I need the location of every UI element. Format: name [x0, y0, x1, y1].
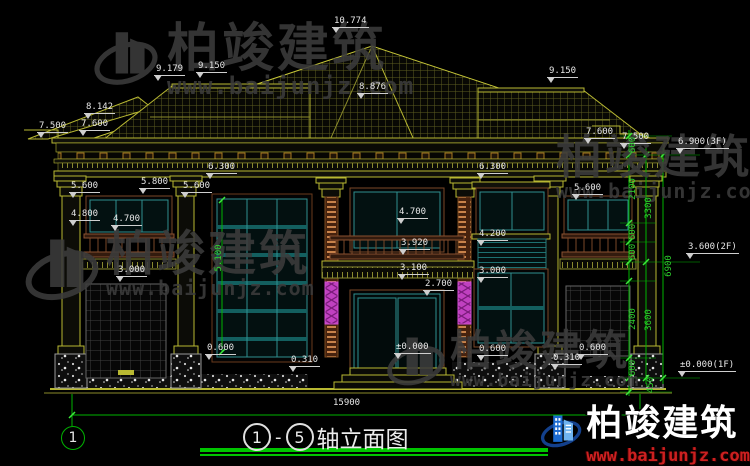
chain-dim: 600	[628, 235, 638, 269]
title-axis-start: 1	[243, 423, 271, 451]
dim-label: 0.600	[577, 343, 608, 355]
dim-label: 5.600	[69, 181, 100, 193]
dim-label: 4.800	[69, 209, 100, 221]
left-grid-window	[86, 284, 166, 378]
dim-label: 0.600	[205, 343, 236, 355]
dim-label: 5.800	[139, 177, 170, 189]
dim-label: ±0.000	[394, 342, 431, 354]
chain-dim: 2400	[628, 302, 638, 336]
title-dash: -	[275, 427, 282, 448]
dim-label: 4.700	[397, 207, 428, 219]
chain-dim: 3300	[644, 191, 654, 225]
dim-label: 6.900(3F)	[676, 137, 729, 149]
roof	[24, 46, 656, 140]
brand-footer: 柏竣建筑 www.baijunjz.com	[540, 393, 750, 466]
brand-name: 柏竣建筑	[586, 394, 750, 446]
left-balcony-railing	[82, 234, 176, 269]
dim-label: 9.150	[547, 66, 578, 78]
right-upper-window	[564, 196, 632, 234]
dim-label: 7.600	[584, 127, 615, 139]
pilaster-far-left	[54, 176, 87, 388]
dim-label: 6.300	[206, 162, 237, 174]
tall-stair-window	[212, 194, 312, 362]
dim-label: 10.774	[332, 16, 369, 28]
cornice	[52, 138, 668, 177]
title-axis-end: 5	[286, 423, 314, 451]
rightcenter-upper-window	[472, 182, 550, 269]
right-balcony-railing	[560, 234, 636, 269]
brand-logo-icon	[540, 397, 582, 463]
chain-dim: 2100	[628, 172, 638, 206]
chain-dim: 3600	[644, 303, 654, 337]
title-text: 轴立面图	[317, 420, 409, 454]
chain-dim: 600	[628, 351, 638, 385]
dim-label: 8.142	[84, 102, 115, 114]
dim-label: 8.876	[357, 82, 388, 94]
dim-label: 3.100	[398, 263, 429, 275]
dim-label: 0.310	[289, 355, 320, 367]
chain-dim: 6900	[664, 249, 674, 283]
rightcenter-lower-window	[474, 269, 548, 347]
dim-label: 4.200	[477, 229, 508, 241]
cad-elevation-drawing: 柏竣建筑 www.baijunjz.com 柏竣建筑 www.baijunjz.…	[0, 0, 750, 466]
dim-label: 0.600	[477, 344, 508, 356]
dim-label: 7.600	[79, 119, 110, 131]
stair-height-dim: 5.100	[214, 241, 224, 275]
dim-label: 9.150	[196, 61, 227, 73]
dim-label: 5.600	[572, 183, 603, 195]
column-left	[170, 176, 202, 388]
brand-site: www.baijunjz.com	[586, 446, 750, 466]
dim-label: ±0.000(1F)	[678, 360, 736, 372]
axis-bubble-1: 1	[61, 426, 85, 450]
dim-label: 6.300	[477, 162, 508, 174]
dim-label: 2.700	[423, 279, 454, 291]
chain-dim: 600	[628, 128, 638, 162]
dim-label: 4.700	[111, 214, 142, 226]
drawing-title: 1 - 5 轴立面图	[243, 420, 409, 454]
dim-label: 7.500	[37, 121, 68, 133]
dim-label: 3.000	[477, 266, 508, 278]
total-width-dim: 15900	[331, 398, 362, 409]
dim-label: 3.920	[399, 238, 430, 250]
dim-label: 3.000	[116, 265, 147, 277]
dim-label: 5.600	[181, 181, 212, 193]
entry-steps	[334, 368, 462, 389]
dim-label: 3.600(2F)	[686, 242, 739, 254]
dim-label: 9.179	[154, 64, 185, 76]
